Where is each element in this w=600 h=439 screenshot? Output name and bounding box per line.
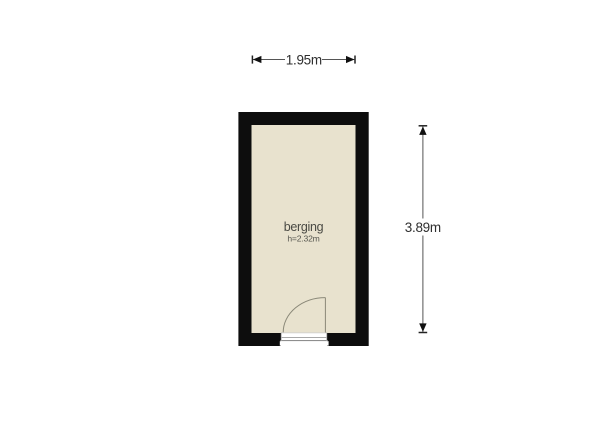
svg-text:3.89m: 3.89m (405, 220, 441, 235)
svg-text:h=2.32m: h=2.32m (287, 234, 319, 244)
svg-text:berging: berging (284, 220, 324, 234)
svg-text:1.95m: 1.95m (286, 52, 322, 67)
